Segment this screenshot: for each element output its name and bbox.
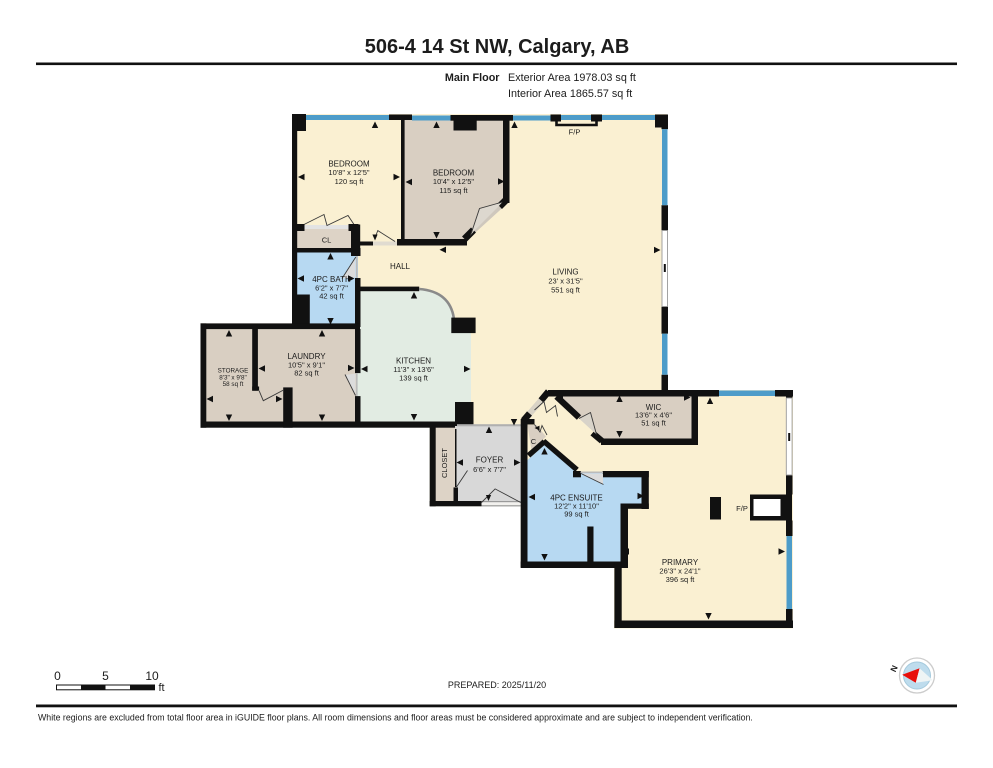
svg-text:99 sq ft: 99 sq ft xyxy=(564,510,590,519)
svg-text:LIVING: LIVING xyxy=(552,268,578,277)
svg-text:42 sq ft: 42 sq ft xyxy=(319,292,345,301)
svg-text:0: 0 xyxy=(54,669,61,683)
svg-text:STORAGE: STORAGE xyxy=(218,368,249,375)
svg-text:Interior Area 1865.57 sq ft: Interior Area 1865.57 sq ft xyxy=(508,88,632,100)
svg-text:396 sq ft: 396 sq ft xyxy=(666,575,696,584)
svg-text:551 sq ft: 551 sq ft xyxy=(551,286,581,295)
svg-text:F/P: F/P xyxy=(736,504,748,513)
svg-text:6'6" x 7'7": 6'6" x 7'7" xyxy=(473,465,506,474)
svg-text:10'8" x 12'5": 10'8" x 12'5" xyxy=(328,168,369,177)
svg-text:10'4" x 12'5": 10'4" x 12'5" xyxy=(433,177,474,186)
svg-text:23' x 31'5": 23' x 31'5" xyxy=(548,277,583,286)
svg-text:Main Floor: Main Floor xyxy=(445,72,500,84)
svg-text:White regions are excluded fro: White regions are excluded from total fl… xyxy=(38,713,753,723)
svg-text:51 sq ft: 51 sq ft xyxy=(641,419,667,428)
svg-text:Exterior Area 1978.03 sq ft: Exterior Area 1978.03 sq ft xyxy=(508,72,636,84)
svg-text:5: 5 xyxy=(102,669,109,683)
svg-text:115 sq ft: 115 sq ft xyxy=(439,186,468,195)
svg-text:FOYER: FOYER xyxy=(476,456,504,465)
svg-text:PREPARED: 2025/11/20: PREPARED: 2025/11/20 xyxy=(448,680,546,690)
svg-text:CL: CL xyxy=(322,236,332,245)
svg-text:139 sq ft: 139 sq ft xyxy=(399,374,429,383)
svg-text:82 sq ft: 82 sq ft xyxy=(294,369,320,378)
svg-text:C: C xyxy=(531,437,537,446)
svg-text:CLOSET: CLOSET xyxy=(440,448,449,478)
svg-text:HALL: HALL xyxy=(390,262,411,271)
svg-text:58 sq ft: 58 sq ft xyxy=(223,381,244,388)
svg-text:506-4 14 St NW, Calgary, AB: 506-4 14 St NW, Calgary, AB xyxy=(365,36,630,58)
svg-text:10: 10 xyxy=(145,669,159,683)
svg-text:120 sq ft: 120 sq ft xyxy=(335,177,365,186)
svg-text:ft: ft xyxy=(159,682,165,694)
svg-text:F/P: F/P xyxy=(569,128,581,137)
